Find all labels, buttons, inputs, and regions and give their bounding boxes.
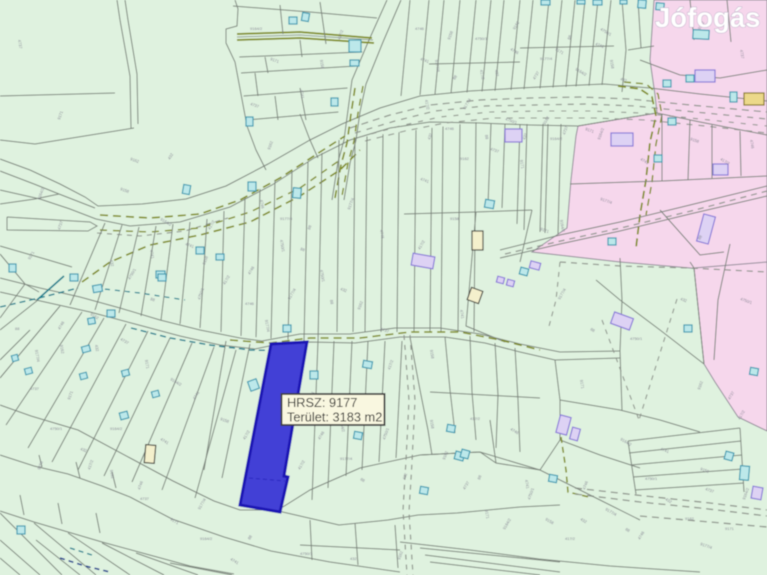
svg-text:4746: 4746: [415, 26, 425, 31]
svg-text:HRSZ: 9177: HRSZ: 9177: [287, 395, 357, 410]
svg-text:4750/1: 4750/1: [50, 426, 63, 431]
svg-text:9177/4: 9177/4: [340, 456, 353, 461]
svg-text:432: 432: [350, 556, 357, 561]
svg-text:9162: 9162: [685, 516, 695, 521]
svg-text:4750/1: 4750/1: [475, 36, 488, 41]
svg-text:9162: 9162: [460, 156, 470, 161]
svg-text:9164/2: 9164/2: [200, 536, 213, 541]
svg-text:4750/1: 4750/1: [630, 336, 643, 341]
svg-text:9177/4: 9177/4: [280, 216, 293, 221]
svg-text:Terület: 3183 m2: Terület: 3183 m2: [287, 410, 382, 425]
svg-text:417/2: 417/2: [565, 536, 576, 541]
svg-text:9158: 9158: [450, 216, 460, 221]
svg-text:4750/1: 4750/1: [645, 476, 658, 481]
svg-text:9164/2: 9164/2: [250, 26, 263, 31]
svg-text:9164/2: 9164/2: [550, 136, 563, 141]
svg-text:4737: 4737: [30, 386, 40, 391]
svg-text:4750/1: 4750/1: [300, 551, 313, 556]
svg-text:417/2: 417/2: [470, 416, 481, 421]
svg-text:4737: 4737: [140, 496, 150, 501]
svg-text:9177/4: 9177/4: [540, 56, 553, 61]
svg-text:Jófogás: Jófogás: [655, 2, 760, 33]
svg-text:9164/2: 9164/2: [110, 426, 123, 431]
svg-text:4746: 4746: [245, 301, 255, 306]
svg-text:4746: 4746: [445, 126, 455, 131]
svg-text:9171: 9171: [725, 526, 735, 531]
svg-text:88: 88: [15, 326, 20, 331]
